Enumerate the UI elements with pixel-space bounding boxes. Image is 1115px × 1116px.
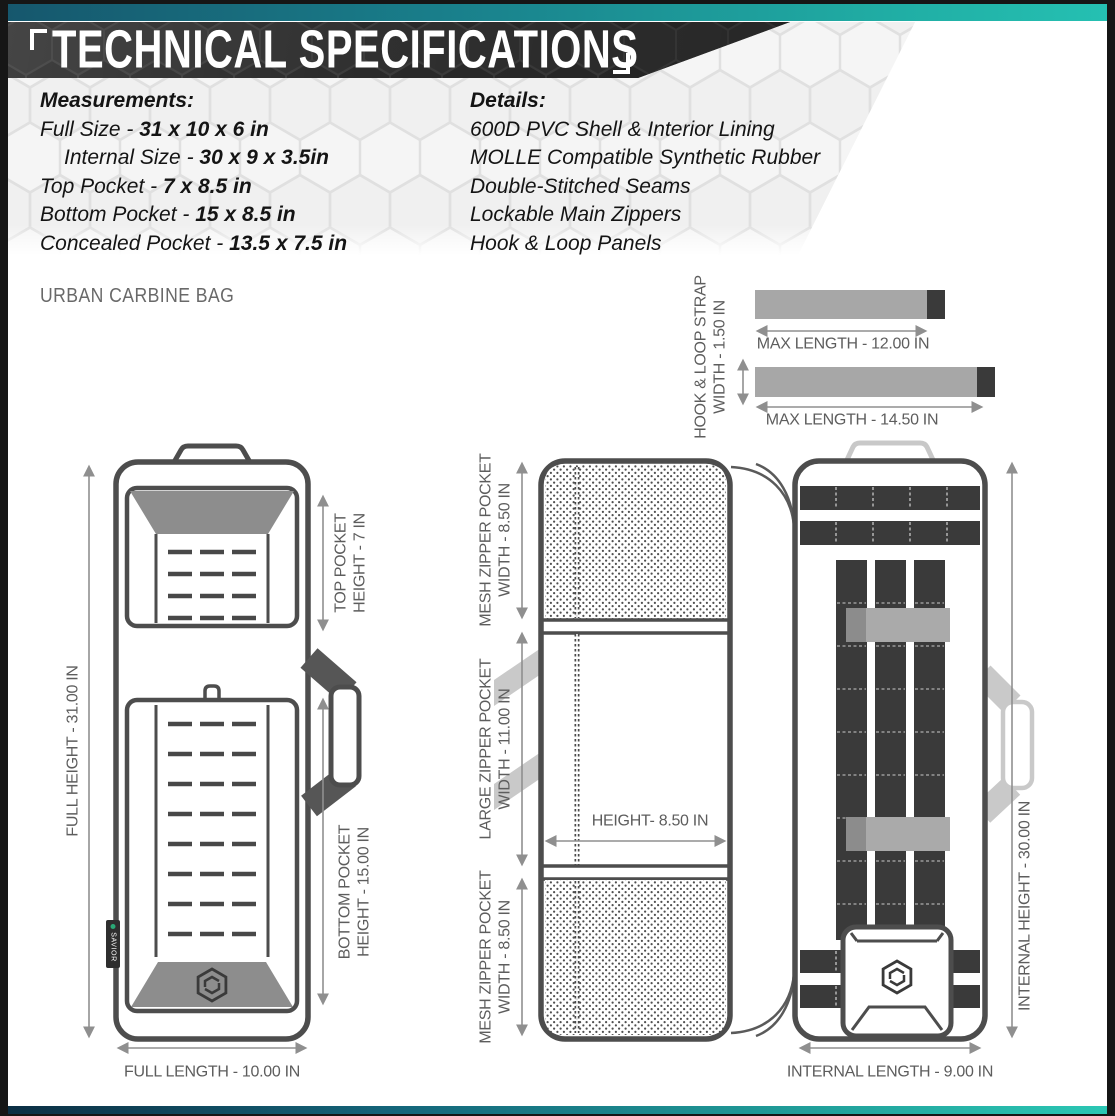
full-length-label: FULL LENGTH - 10.00 IN — [124, 1064, 300, 1083]
brand-tag-dot-icon — [111, 924, 116, 929]
internal-height-label: INTERNAL HEIGHT - 30.00 IN — [1017, 801, 1036, 1011]
internal-view-drawing — [795, 443, 1032, 1048]
strap-long-bar — [755, 367, 977, 397]
molle-band-1 — [800, 486, 980, 510]
measurement-row: Full Size - 31 x 10 x 6 in — [40, 116, 347, 145]
detail-row: Lockable Main Zippers — [470, 201, 820, 230]
detail-row: MOLLE Compatible Synthetic Rubber — [470, 144, 820, 173]
large-pocket-label: LARGE ZIPPER POCKET WIDTH - 11.00 IN — [477, 658, 514, 839]
measurement-row: Top Pocket - 7 x 8.5 in — [40, 173, 347, 202]
internal-length-label: INTERNAL LENGTH - 9.00 IN — [787, 1064, 993, 1083]
top-pocket-label: TOP POCKET HEIGHT - 7 IN — [332, 513, 369, 613]
spec-sheet-page: TECHNICAL SPECIFICATIONS Measurements: F… — [0, 0, 1115, 1116]
measurement-row: Bottom Pocket - 15 x 8.5 in — [40, 201, 347, 230]
detail-row: Double-Stitched Seams — [470, 173, 820, 202]
detail-row: Hook & Loop Panels — [470, 230, 820, 259]
mesh-pocket-top — [545, 465, 726, 620]
side-handle-grip — [331, 687, 359, 785]
product-name: URBAN CARBINE BAG — [40, 285, 234, 308]
measurement-row: Concealed Pocket - 13.5 x 7.5 in — [40, 230, 347, 259]
brand-tag: SAVIOR — [106, 920, 120, 968]
pocket-height-label: HEIGHT- 8.50 IN — [592, 813, 708, 832]
details-block: Details: 600D PVC Shell & Interior Linin… — [470, 87, 820, 258]
brand-tag-text: SAVIOR — [110, 932, 117, 962]
mesh-pocket-bottom — [545, 880, 726, 1035]
details-heading: Details: — [470, 87, 820, 116]
measurements-block: Measurements: Full Size - 31 x 10 x 6 in… — [40, 87, 347, 258]
molle-band-2 — [800, 521, 980, 545]
top-pocket-flap — [130, 491, 294, 534]
strap-short-bar — [755, 290, 927, 319]
bottom-pocket-label: BOTTOM POCKET HEIGHT - 15.00 IN — [336, 825, 373, 959]
measurements-heading: Measurements: — [40, 87, 347, 116]
mesh-pocket-bottom-label: MESH ZIPPER POCKET WIDTH - 8.50 IN — [477, 870, 514, 1043]
inner-view-drawing — [494, 461, 794, 1039]
strap-long-length-label: MAX LENGTH - 14.50 IN — [766, 412, 938, 431]
detail-row: 600D PVC Shell & Interior Lining — [470, 116, 820, 145]
bracket-top-left — [30, 29, 47, 50]
front-view-drawing — [89, 446, 359, 1048]
page-title: TECHNICAL SPECIFICATIONS — [52, 9, 638, 90]
mesh-pocket-top-label: MESH ZIPPER POCKET WIDTH - 8.50 IN — [477, 453, 514, 626]
fold-curves — [731, 464, 794, 1036]
strap-long-end — [977, 367, 995, 397]
strap-short-end — [927, 290, 945, 319]
full-height-label: FULL HEIGHT - 31.00 IN — [65, 665, 84, 836]
page-title-text: TECHNICAL SPECIFICATIONS — [52, 20, 638, 81]
side-handle-grip-light — [1003, 702, 1032, 788]
hook-loop-width-label: HOOK & LOOP STRAP WIDTH - 1.50 IN — [692, 275, 729, 439]
measurement-row: Internal Size - 30 x 9 x 3.5in — [40, 144, 347, 173]
strap-short-length-label: MAX LENGTH - 12.00 IN — [757, 336, 929, 355]
